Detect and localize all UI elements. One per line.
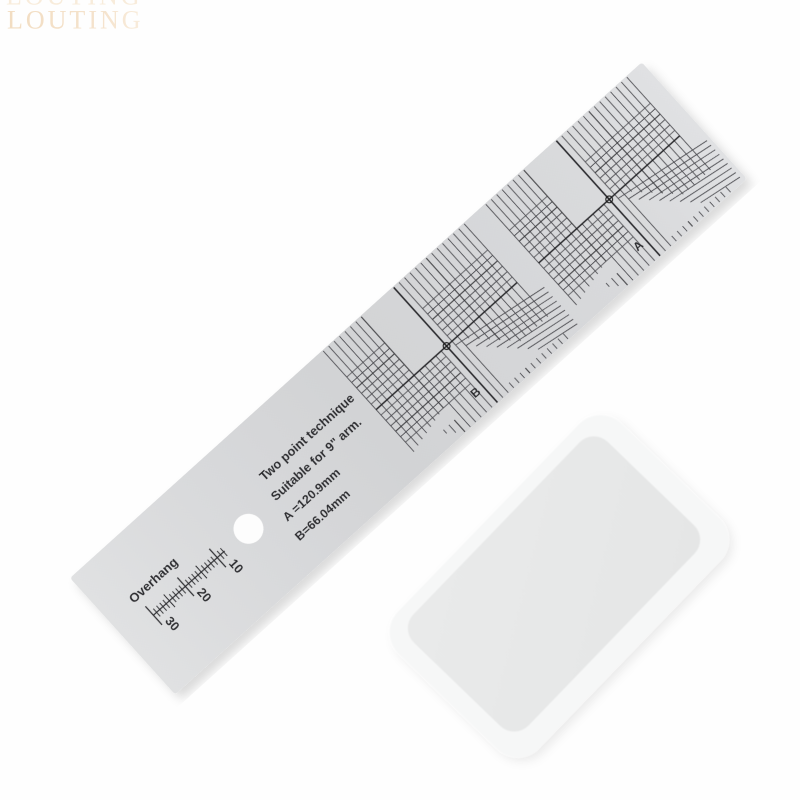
svg-text:LOUTING: LOUTING <box>7 6 144 35</box>
